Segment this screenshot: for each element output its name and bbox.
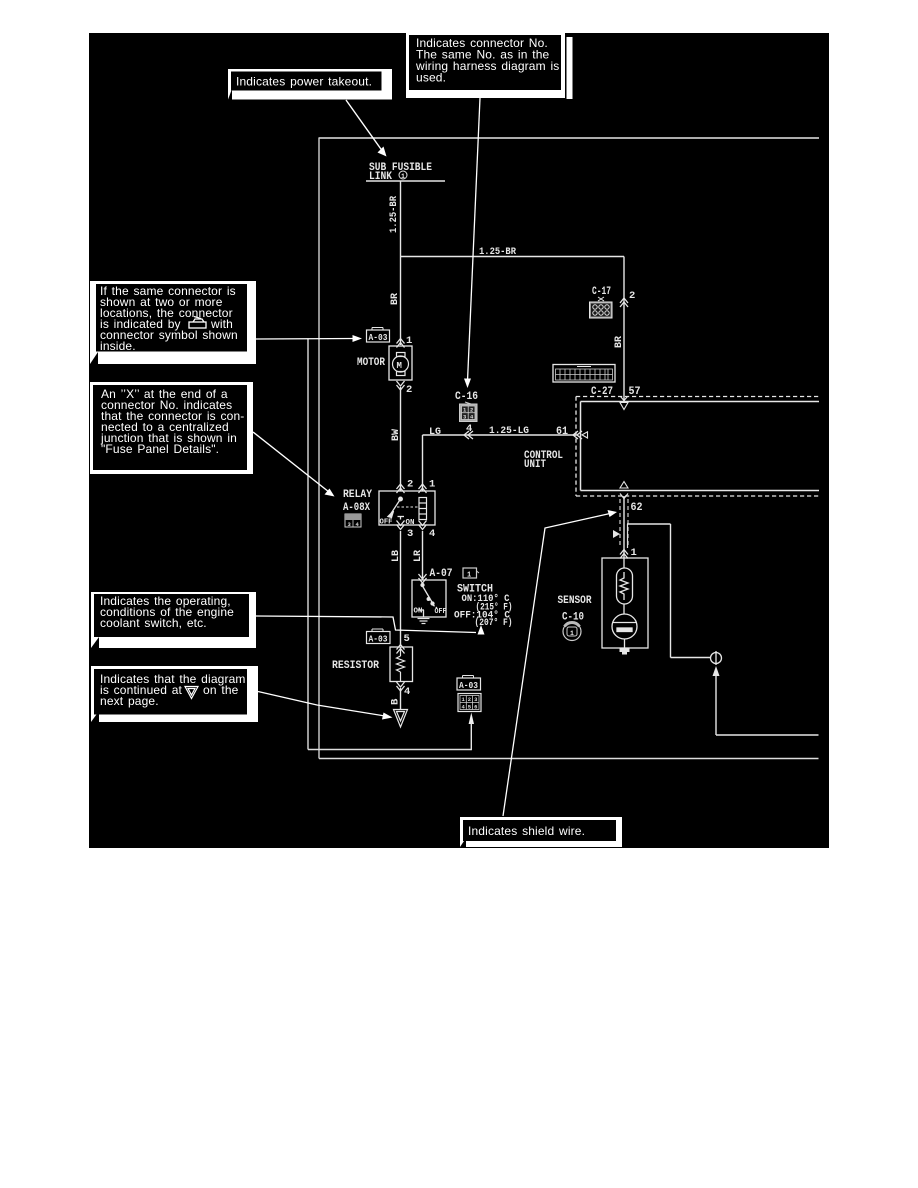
svg-text:BR: BR — [389, 292, 401, 305]
svg-text:A-03: A-03 — [369, 332, 388, 343]
svg-text:BW: BW — [390, 428, 402, 441]
svg-text:1: 1 — [401, 173, 405, 180]
svg-text:C-16: C-16 — [455, 391, 478, 403]
svg-text:2: 2 — [629, 290, 635, 302]
svg-text:coolant switch, etc.: coolant switch, etc. — [100, 616, 207, 630]
svg-text:ON: ON — [406, 519, 415, 527]
svg-text:C-17: C-17 — [592, 286, 611, 298]
svg-text:LG: LG — [429, 426, 441, 438]
svg-text:62: 62 — [631, 502, 643, 514]
svg-text:OFF: OFF — [435, 608, 447, 616]
svg-text:3: 3 — [407, 528, 413, 540]
svg-text:1: 1 — [570, 630, 574, 637]
svg-text:MOTOR: MOTOR — [357, 357, 385, 369]
svg-text:RESISTOR: RESISTOR — [332, 660, 379, 672]
svg-text:M: M — [397, 361, 402, 371]
svg-text:UNIT: UNIT — [524, 459, 546, 471]
svg-text:1: 1 — [429, 479, 435, 491]
svg-text:1.25-LG: 1.25-LG — [489, 425, 529, 437]
svg-text:4: 4 — [429, 528, 435, 540]
svg-text:5: 5 — [404, 633, 410, 645]
svg-text:C-27: C-27 — [591, 386, 613, 398]
svg-text:6: 6 — [474, 704, 477, 711]
svg-text:1: 1 — [631, 547, 637, 559]
svg-text:2: 2 — [468, 696, 471, 703]
svg-text:next page.: next page. — [100, 694, 159, 708]
svg-text:A-03: A-03 — [369, 634, 388, 645]
svg-text:SENSOR: SENSOR — [558, 595, 592, 607]
svg-text:1.25-BR: 1.25-BR — [388, 195, 400, 233]
svg-text:OFF: OFF — [380, 519, 393, 527]
svg-text:4: 4 — [404, 686, 410, 698]
svg-text:ON: ON — [414, 608, 423, 616]
svg-text:61: 61 — [556, 426, 568, 438]
svg-text:inside.: inside. — [100, 339, 136, 353]
svg-text:BR: BR — [613, 335, 625, 348]
svg-text:1.25-BR: 1.25-BR — [479, 246, 517, 258]
svg-text:2: 2 — [470, 407, 473, 414]
svg-text:LR: LR — [412, 549, 424, 562]
svg-text:RELAY: RELAY — [343, 489, 372, 501]
svg-text:1: 1 — [467, 572, 471, 580]
svg-text:"Fuse Panel Details".: "Fuse Panel Details". — [101, 442, 219, 456]
svg-text:2: 2 — [406, 384, 412, 396]
svg-text:Indicates shield wire.: Indicates shield wire. — [468, 824, 585, 838]
svg-text:A-07: A-07 — [430, 568, 453, 580]
svg-text:LB: LB — [390, 549, 402, 562]
svg-text:A-08X: A-08X — [343, 502, 370, 514]
svg-text:1: 1 — [406, 335, 412, 347]
svg-text:B: B — [390, 698, 402, 705]
svg-text:2: 2 — [407, 479, 413, 491]
svg-text:A-03: A-03 — [459, 680, 478, 691]
svg-text:used.: used. — [416, 71, 446, 85]
svg-text:Indicates power takeout.: Indicates power takeout. — [236, 75, 372, 89]
svg-text:on the: on the — [203, 683, 239, 697]
